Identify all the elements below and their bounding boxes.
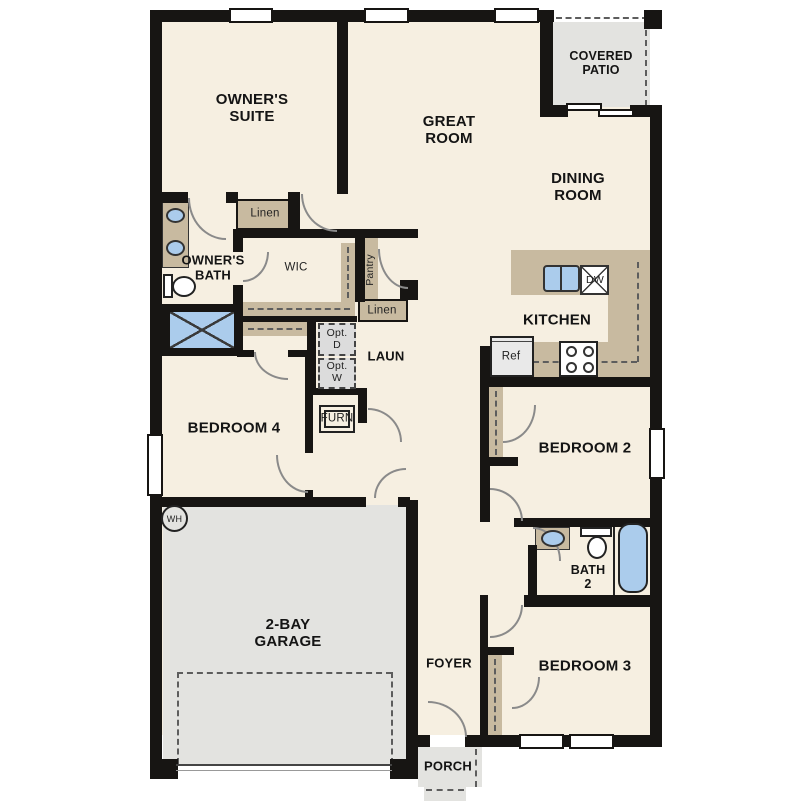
bedroom3-closet-rod-dashed [494, 659, 496, 731]
refrigerator-handle [492, 341, 532, 342]
garage-door-clearance-dashed [177, 672, 392, 674]
bedroom3-label: BEDROOM 3 [539, 659, 632, 676]
garage-label: 2-BAY GARAGE [254, 617, 321, 651]
garage-door-line [176, 770, 392, 771]
covered-patio-label: COVERED PATIO [569, 49, 632, 77]
garage-wall [398, 497, 410, 507]
wic-label: WIC [285, 262, 308, 275]
window [649, 428, 665, 479]
garage-wall [406, 500, 418, 777]
stove-burner [566, 362, 577, 373]
pantry-label: Pantry [365, 254, 377, 286]
optional-dryer-label: Opt. D [327, 328, 348, 352]
laundry-label: LAUN [368, 350, 405, 365]
dining-room-label: DINING ROOM [551, 171, 605, 205]
stove-burner [583, 346, 594, 357]
stove-burner [566, 346, 577, 357]
shower [170, 312, 234, 348]
furnace-label: FURN [321, 413, 354, 426]
patio-wall [540, 10, 553, 117]
garage-door-clearance-dashed [391, 672, 393, 764]
bath-sink [166, 208, 185, 223]
kitchen-sink-divider [560, 267, 562, 290]
window [147, 434, 163, 496]
window [519, 734, 564, 749]
wall [337, 22, 348, 194]
wall [358, 395, 367, 423]
floor-plan: OWNER'S SUITE GREAT ROOM DINING ROOM COV… [0, 0, 810, 810]
bedroom4-label: BEDROOM 4 [188, 421, 281, 438]
great-room-label: GREAT ROOM [423, 114, 475, 148]
wall [237, 316, 357, 322]
owners-bath-label: OWNER'S BATH [182, 253, 245, 282]
garage-corner [390, 759, 418, 779]
wic-rod-dashed [248, 308, 350, 310]
foyer-label: FOYER [426, 657, 472, 672]
patio-edge-dashed [556, 17, 648, 19]
patio-wall [540, 105, 568, 117]
sliding-door [566, 103, 602, 111]
porch-label: PORCH [424, 760, 472, 775]
wall [465, 735, 482, 747]
wall [226, 192, 238, 203]
wall [480, 466, 490, 522]
wall [162, 192, 188, 203]
bedroom2-closet-rod-dashed [495, 391, 497, 455]
wall [150, 10, 162, 777]
wall [480, 457, 518, 466]
refrigerator-label: Ref [502, 351, 521, 364]
wall [524, 595, 652, 607]
wall [233, 238, 243, 252]
garage-door-clearance-dashed [177, 672, 179, 764]
garage-wall [162, 497, 366, 507]
dishwasher-label: DW [586, 275, 604, 287]
wall [480, 387, 489, 458]
owners-suite-label: OWNER'S SUITE [216, 92, 288, 126]
window [229, 8, 273, 23]
wall [480, 377, 652, 387]
linen-hall-label: Linen [367, 305, 396, 318]
window [569, 734, 614, 749]
bathtub [618, 523, 648, 593]
garage-corner [150, 759, 178, 779]
optional-washer-label: Opt. W [327, 361, 348, 385]
window [364, 8, 409, 23]
wall [307, 316, 316, 390]
tub-partition-line [613, 527, 615, 595]
stove-burner [583, 362, 594, 373]
porch-step-dashed [426, 789, 464, 791]
bedroom4-closet-rod-dashed [248, 328, 302, 330]
toilet [587, 536, 607, 559]
wall [480, 647, 514, 655]
wall [480, 595, 488, 735]
patio-wall [630, 105, 662, 117]
linen-upper-label: Linen [250, 208, 279, 221]
garage-door-line [176, 764, 392, 766]
bedroom2-label: BEDROOM 2 [539, 441, 632, 458]
patio-wall [644, 10, 662, 29]
bath2-label: BATH 2 [571, 563, 606, 591]
sliding-door [598, 109, 634, 117]
water-heater-label: WH [167, 513, 182, 523]
patio-edge-dashed [645, 20, 647, 106]
kitchen-upper-cabinet-dashed [637, 262, 639, 362]
wall [305, 388, 367, 395]
porch-step [424, 785, 466, 801]
porch-edge-dashed [475, 749, 477, 787]
wall [480, 346, 490, 387]
bath2-sink [541, 530, 565, 547]
window [494, 8, 539, 23]
wall [650, 107, 662, 747]
wic-rod-dashed [347, 247, 349, 298]
kitchen-label: KITCHEN [523, 313, 591, 330]
